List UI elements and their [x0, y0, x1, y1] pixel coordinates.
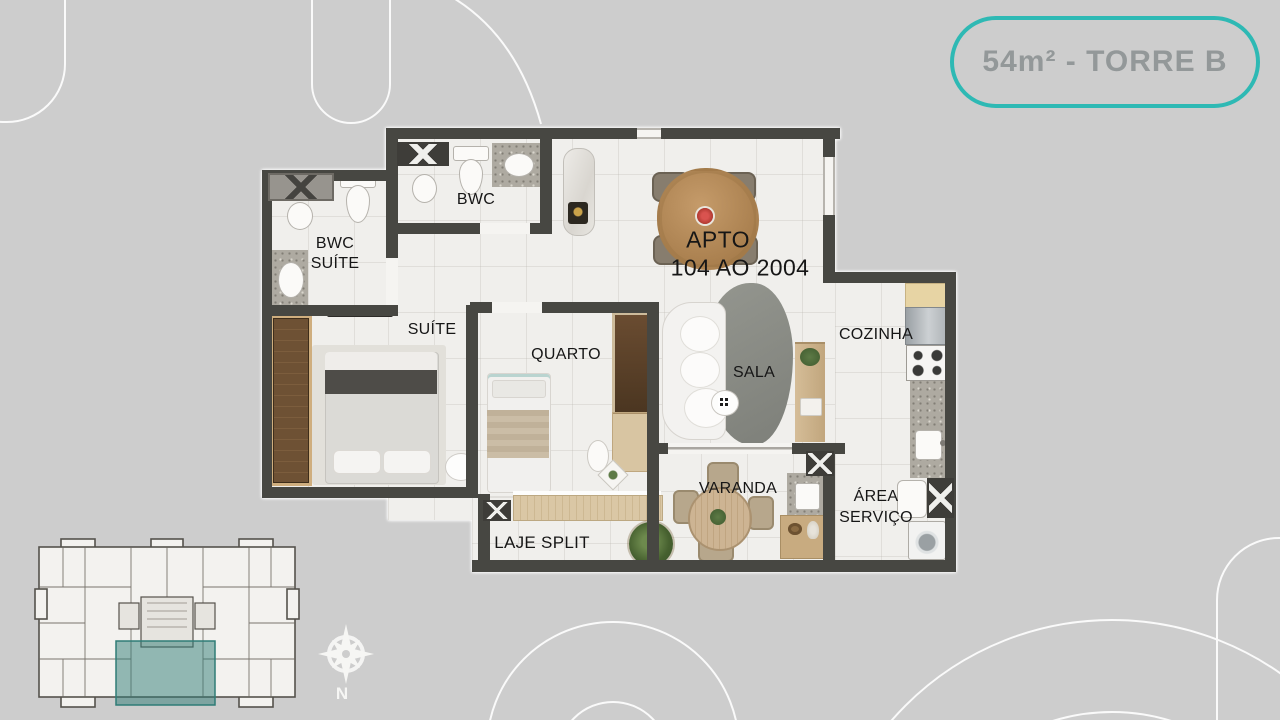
sliding-glass-door — [668, 443, 792, 454]
room-label-bwc-suite: BWC — [316, 235, 354, 253]
wall — [945, 272, 956, 572]
cooktop — [906, 345, 949, 381]
area-tower-badge: 54m² - TORRE B — [950, 16, 1260, 108]
keyplan-elevator — [195, 603, 215, 629]
wall — [823, 128, 835, 157]
dresser — [612, 412, 650, 472]
deco-circle — [912, 712, 1280, 720]
room-label-bwc-suite: SUÍTE — [311, 255, 360, 273]
entry-door — [823, 157, 835, 215]
shower-tray — [504, 153, 534, 177]
duct-shaft — [927, 478, 954, 518]
deco-arc — [443, 0, 541, 124]
counter — [905, 283, 950, 310]
room-label-suite: SUÍTE — [408, 321, 457, 339]
keyplan-core — [141, 597, 193, 647]
deco-circle — [487, 622, 739, 720]
badge-label: 54m² - TORRE B — [982, 45, 1227, 79]
keyplan-balcony — [287, 589, 299, 619]
room-label-laje-split: LAJE SPLIT — [494, 533, 590, 553]
room-label-quarto: QUARTO — [531, 346, 601, 364]
deco-pill — [0, 0, 65, 122]
deco-pill — [312, 0, 390, 123]
compass-hub — [342, 650, 350, 658]
sofa-cushion — [680, 316, 720, 352]
bwc-door — [480, 223, 530, 234]
deco-pill — [1217, 538, 1280, 720]
bowl — [788, 523, 802, 535]
keyplan-elevator — [119, 603, 139, 629]
varanda-chair — [748, 496, 774, 530]
blanket — [487, 410, 549, 458]
pillow — [333, 450, 381, 474]
deco-circle — [558, 702, 668, 720]
key-plan — [33, 537, 301, 709]
deck-strip — [513, 495, 663, 521]
keyplan-balcony — [35, 589, 47, 619]
sink — [412, 174, 437, 203]
pillow — [492, 380, 546, 398]
wall — [262, 487, 478, 498]
quarto-door — [492, 302, 542, 313]
varanda-cabinet — [780, 515, 826, 559]
qr-decor — [718, 396, 730, 408]
bed-sheet — [325, 352, 437, 370]
window — [637, 128, 661, 139]
flower-centerpiece — [697, 208, 713, 224]
room-label-area-servico: SERVIÇO — [839, 509, 913, 527]
floorplan-page: 54m² - TORRE B — [0, 0, 1280, 720]
duct-shaft — [268, 173, 334, 201]
wall — [398, 223, 480, 234]
main-floor-plan: BWC SUÍTE BWC SUÍTE QUARTO SALA COZINHA … — [260, 126, 960, 576]
sofa-cushion — [680, 352, 720, 388]
compass-north-label: N — [336, 684, 348, 704]
pillow — [383, 450, 431, 474]
plant — [710, 509, 726, 525]
wall — [530, 223, 552, 234]
shelf-box — [800, 398, 822, 416]
duct-shaft — [397, 142, 449, 166]
wardrobe — [270, 315, 312, 486]
wall — [823, 215, 835, 283]
wall — [262, 170, 272, 497]
bed-runner — [325, 370, 437, 394]
shower-drain — [287, 202, 313, 230]
duct-shaft — [483, 500, 511, 521]
wall — [386, 180, 398, 258]
keyplan-highlighted-unit — [116, 641, 215, 705]
wall — [262, 305, 398, 316]
deco-circle — [820, 620, 1280, 720]
plant — [800, 348, 820, 366]
room-label-varanda: VARANDA — [699, 480, 777, 498]
kitchen-sink — [915, 430, 942, 460]
wall — [466, 305, 478, 497]
room-label-area-servico: ÁREA — [854, 488, 899, 506]
wall — [388, 128, 840, 139]
wall — [835, 272, 956, 283]
wall — [472, 560, 952, 572]
varanda-sink — [795, 483, 820, 510]
duct-shaft — [806, 451, 834, 476]
room-label-sala: SALA — [733, 364, 775, 382]
washing-machine — [908, 521, 946, 560]
room-label-cozinha: COZINHA — [839, 326, 913, 344]
decor-tray — [568, 202, 588, 224]
wall — [647, 302, 659, 564]
kitchen-counter — [910, 379, 948, 478]
apto-range-label: 104 AO 2004 — [671, 255, 810, 282]
sink — [278, 262, 304, 298]
dry-plant — [807, 521, 819, 539]
room-label-bwc: BWC — [457, 191, 495, 209]
wall — [540, 139, 552, 225]
suite-door — [386, 258, 398, 305]
apto-label: APTO — [686, 227, 750, 254]
compass-rose — [314, 618, 378, 690]
